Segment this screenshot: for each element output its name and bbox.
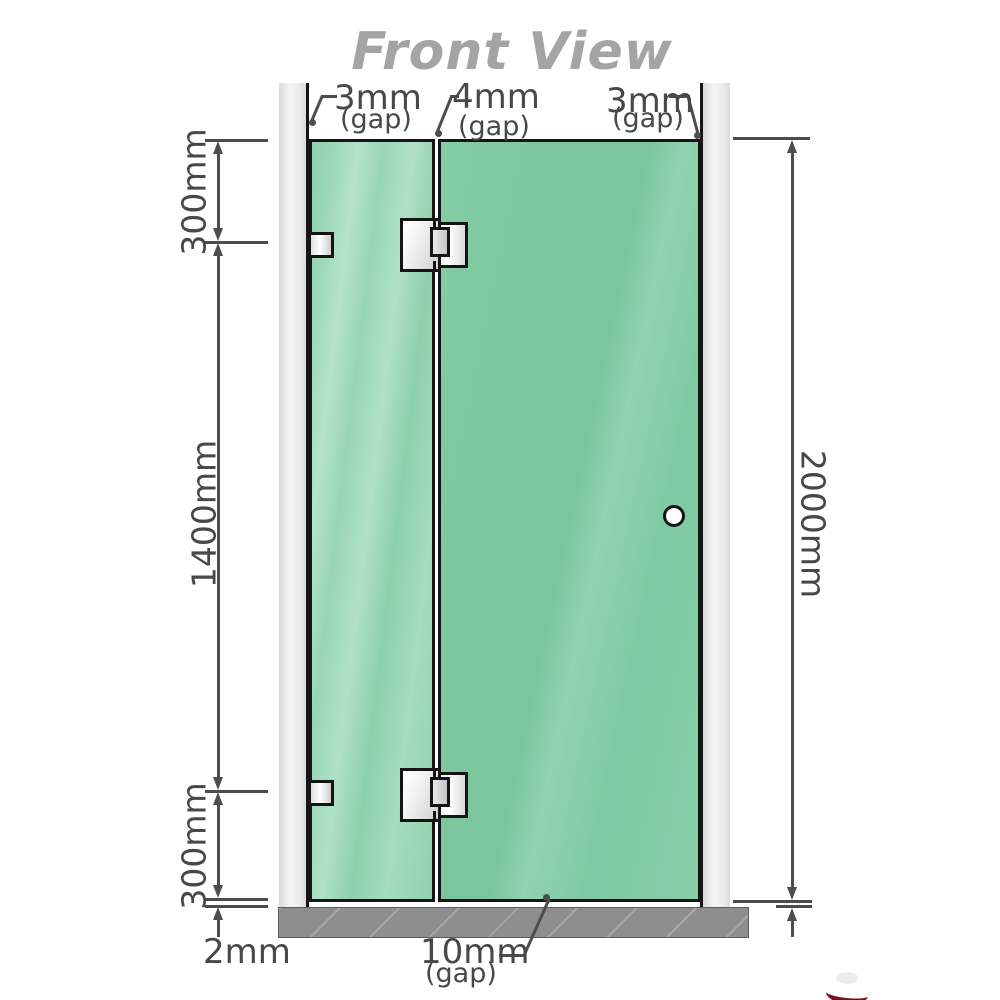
dim-label-left-middle: 1400mm [185,440,224,588]
arrow-down-icon [213,228,223,241]
leader-line [310,95,324,123]
door-glass-panel [438,139,701,902]
arrow-down-icon [787,887,797,900]
arrow-up-icon [213,243,223,256]
hinge-top-icon [400,218,468,272]
arrow-down-icon [213,885,223,898]
arrow-up-icon [213,907,223,920]
gap-note-top-left: (gap) [340,104,412,135]
leader-line [436,96,453,133]
arrow-up-icon [213,792,223,805]
panel-gap-line [433,221,436,229]
right-wall-channel [700,83,730,907]
logo-fragment-red-icon [825,982,869,1000]
dim-line [791,920,794,937]
wall-bracket-top-icon [308,232,334,258]
dim-line [217,153,220,229]
panel-gap-line [433,811,436,819]
dim-tick [205,898,268,901]
gap-note-bottom: (gap) [425,958,497,989]
panel-gap-line [433,771,436,779]
gap-note-top-middle: (gap) [458,111,530,142]
logo-fragment-gray [836,972,858,984]
left-wall-channel [279,83,309,907]
gap-note-top-right: (gap) [612,103,684,134]
hinge-tongue [430,227,450,257]
hinge-bottom-icon [400,768,468,822]
dim-tick [733,900,812,903]
arrow-down-icon [213,777,223,790]
wall-bracket-bottom-icon [308,780,334,806]
page-title: Front View [351,22,673,82]
dim-label-left-bottom: 300mm [175,782,214,909]
panel-gap-line [433,261,436,269]
front-view-diagram: Front View 300mm 1400mm 300mm [0,0,1000,1000]
dim-label-left-top: 300mm [175,128,214,255]
floor-gap-label: 2mm [203,932,291,972]
arrow-up-icon [787,140,797,153]
dim-label-right-total: 2000mm [794,450,833,598]
dim-tick [733,137,810,140]
arrow-up-icon [787,908,797,921]
door-knob-icon [663,505,685,527]
hinge-tongue [430,777,450,807]
dim-line [217,805,220,885]
arrow-up-icon [213,141,223,154]
